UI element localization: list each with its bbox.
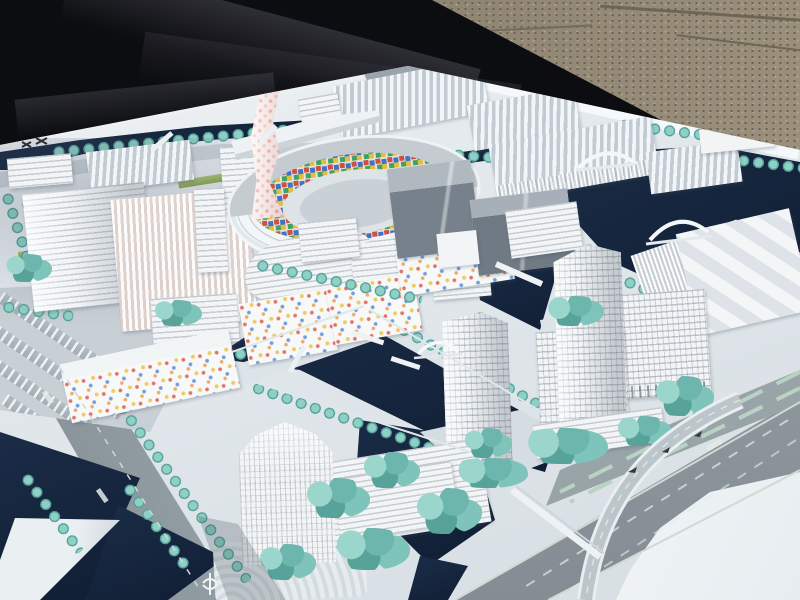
pink-tower-shade bbox=[234, 77, 299, 221]
tree-clump bbox=[448, 458, 528, 488]
ground-crack bbox=[676, 34, 800, 52]
tree-clump bbox=[298, 478, 370, 518]
tree-clump bbox=[0, 254, 52, 282]
building-low bbox=[298, 217, 360, 263]
photo-architectural-model bbox=[0, 0, 800, 600]
building-midrise bbox=[194, 187, 228, 272]
tower-highrise bbox=[553, 243, 628, 435]
building-small bbox=[436, 230, 479, 268]
tree-clump bbox=[408, 488, 482, 534]
tree-clump bbox=[516, 428, 608, 464]
tree-clump bbox=[148, 300, 202, 326]
tree-clump bbox=[326, 528, 410, 570]
ground-crack bbox=[600, 5, 800, 23]
tree-clump bbox=[356, 452, 420, 488]
facade-shading bbox=[553, 243, 628, 435]
tree-clump bbox=[540, 296, 604, 326]
building-low bbox=[7, 153, 73, 188]
tree-clump bbox=[458, 428, 512, 458]
pink-tower bbox=[234, 77, 299, 221]
tree-clump bbox=[648, 376, 714, 416]
tree-clump bbox=[610, 416, 672, 446]
building-slab bbox=[505, 201, 583, 259]
